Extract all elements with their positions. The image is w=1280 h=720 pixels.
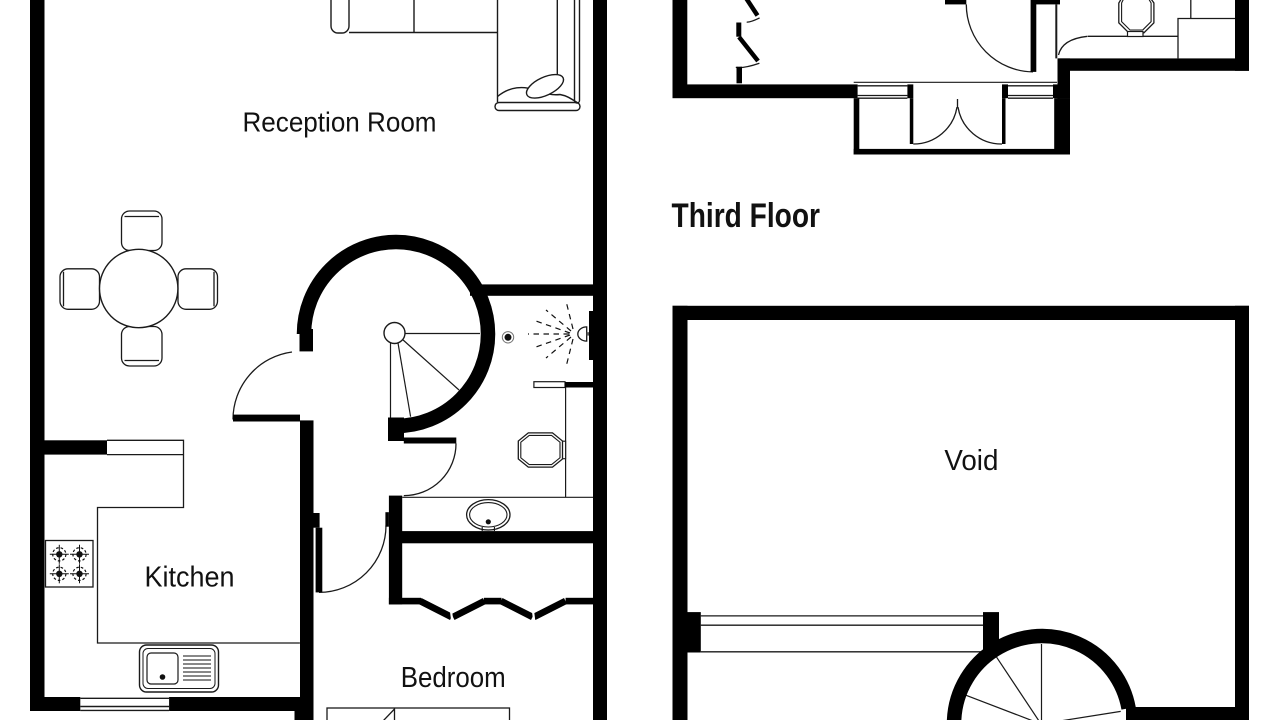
- svg-text:Bedroom: Bedroom: [401, 662, 506, 694]
- svg-text:Third Floor: Third Floor: [672, 197, 821, 235]
- svg-text:Void: Void: [944, 445, 998, 477]
- svg-text:Reception Room: Reception Room: [243, 107, 437, 138]
- svg-text:Kitchen: Kitchen: [145, 562, 235, 594]
